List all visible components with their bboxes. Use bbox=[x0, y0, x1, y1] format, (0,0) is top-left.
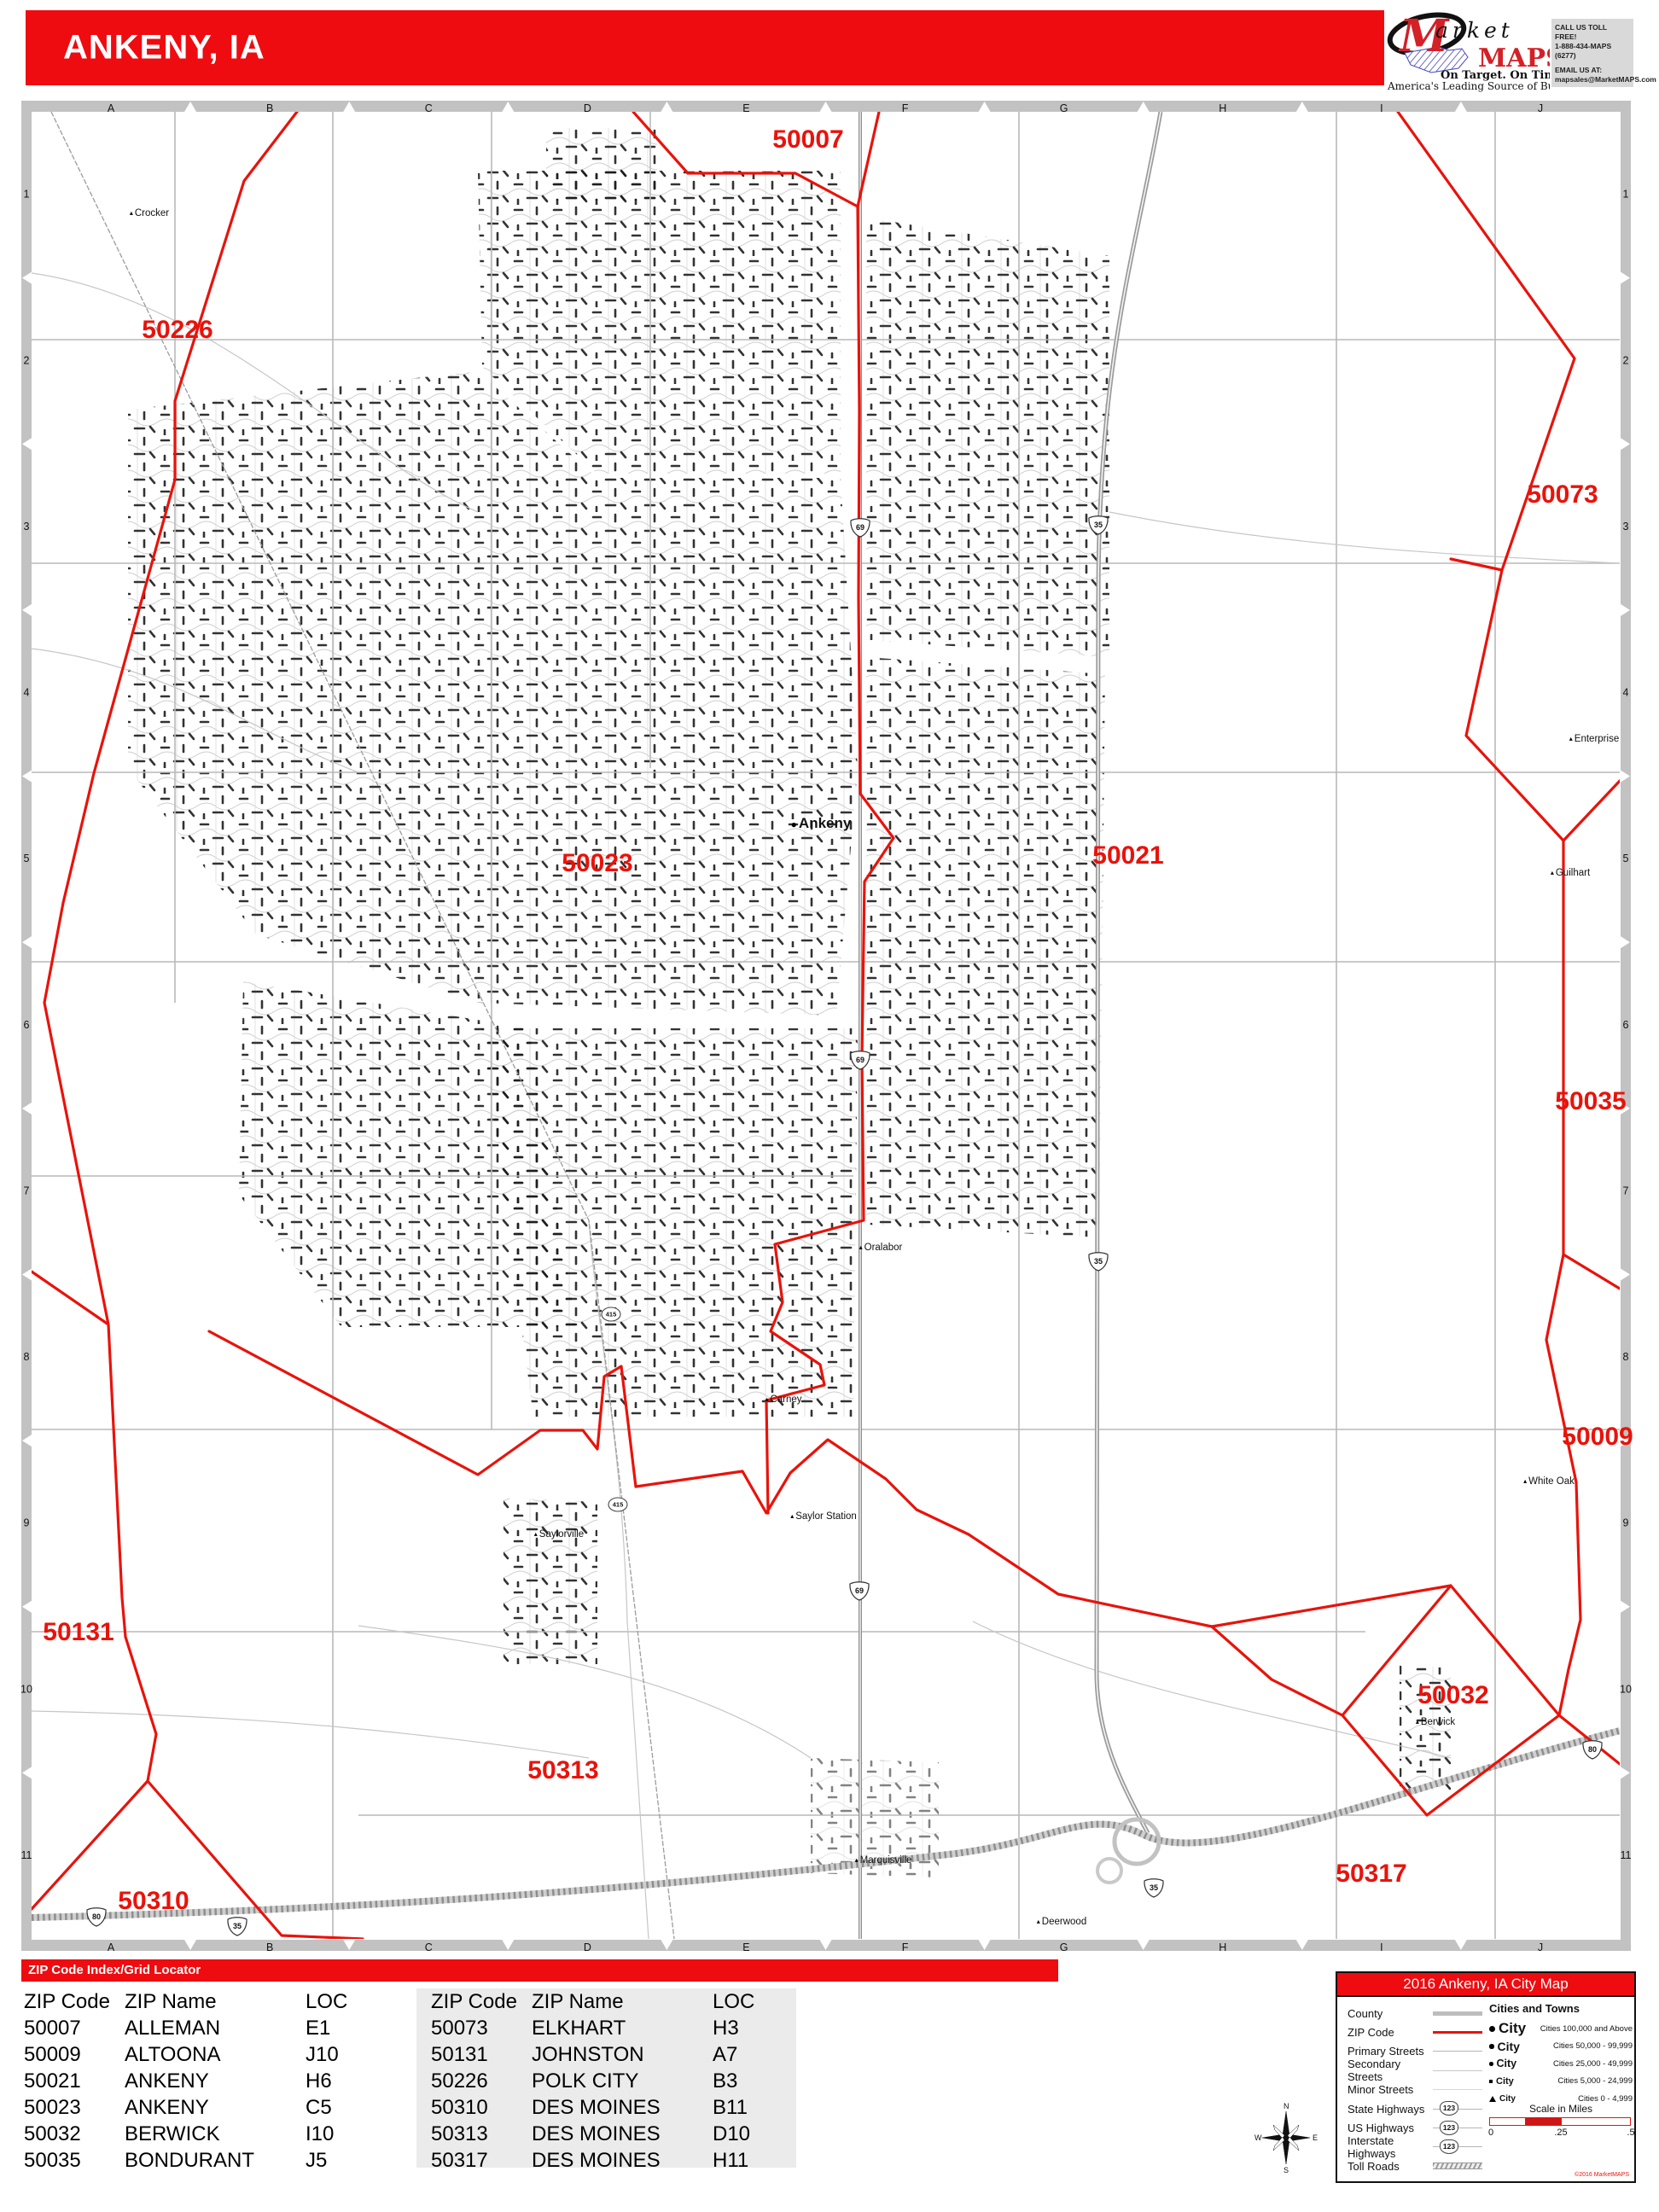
index-cell: ELKHART bbox=[532, 2017, 713, 2040]
legend-line bbox=[1433, 2070, 1482, 2071]
grid-col-top-B: B bbox=[266, 102, 273, 114]
legend-line-sample bbox=[1433, 2046, 1482, 2058]
legend-line bbox=[1433, 2163, 1482, 2169]
city-label-berwick: ▴Berwick bbox=[1416, 1717, 1455, 1727]
grid-row-right-2: 2 bbox=[1623, 354, 1629, 366]
city-label-oralabor: ▴Oralabor bbox=[859, 1243, 903, 1253]
grid-col-bottom-A: A bbox=[108, 1941, 115, 1953]
index-cell: ALLEMAN bbox=[125, 2017, 306, 2040]
zip-label-50310: 50310 bbox=[118, 1887, 189, 1916]
city-class-marker-icon bbox=[1489, 2080, 1493, 2083]
legend-line-sample bbox=[1433, 2027, 1482, 2039]
zip-label-50073: 50073 bbox=[1527, 480, 1598, 509]
index-header-cell: LOC bbox=[306, 1990, 382, 2014]
index-cell: 50073 bbox=[431, 2017, 532, 2040]
zip-boundary-10 bbox=[1563, 781, 1620, 841]
index-header-cell: ZIP Code bbox=[24, 1990, 125, 2014]
legend-line-sample: 123 bbox=[1433, 2103, 1482, 2115]
city-class-label: City bbox=[1499, 2020, 1526, 2037]
table-row: 50009ALTOONAJ10 bbox=[24, 2041, 399, 2068]
page: { "colors":{"accent_red":"#ee0c10","boun… bbox=[0, 0, 1659, 2212]
legend-item-zip-code: ZIP Code bbox=[1348, 2023, 1484, 2041]
city-class-desc: Cities 100,000 and Above bbox=[1540, 2024, 1633, 2034]
index-cell: 50007 bbox=[24, 2017, 125, 2040]
index-title: ZIP Code Index/Grid Locator bbox=[28, 1963, 201, 1977]
table-row: 50023ANKENYC5 bbox=[24, 2094, 399, 2121]
index-cell: B3 bbox=[713, 2069, 789, 2093]
legend-item-label: Secondary Streets bbox=[1348, 2058, 1433, 2083]
city-marker-icon: ▴ bbox=[765, 1395, 768, 1403]
grid-col-top-G: G bbox=[1060, 102, 1068, 114]
city-marker-icon: ▴ bbox=[790, 1512, 794, 1520]
grid-row-right-4: 4 bbox=[1623, 687, 1629, 699]
grid-row-left-3: 3 bbox=[24, 521, 30, 533]
legend-city-class-3: CityCities 5,000 - 24,999 bbox=[1489, 2073, 1633, 2091]
svg-text:69: 69 bbox=[855, 1586, 864, 1595]
us-shield-69: 69 bbox=[850, 1582, 869, 1600]
logo-arket: arket bbox=[1435, 18, 1514, 43]
index-cell: J5 bbox=[306, 2149, 382, 2173]
city-label-enterprise: ▴Enterprise bbox=[1569, 734, 1619, 744]
city-class-label: City bbox=[1496, 2076, 1514, 2087]
svg-text:80: 80 bbox=[92, 1912, 101, 1921]
city-marker-icon: ▴ bbox=[1551, 869, 1554, 876]
scale-tick-1: .25 bbox=[1554, 2128, 1567, 2138]
legend-item-minor-streets: Minor Streets bbox=[1348, 2081, 1484, 2099]
table-row: 50021ANKENYH6 bbox=[24, 2068, 399, 2094]
grid-col-bottom-G: G bbox=[1060, 1941, 1068, 1953]
grid-row-left-8: 8 bbox=[24, 1351, 30, 1363]
index-header-row: ZIP CodeZIP NameLOC bbox=[431, 1988, 798, 2015]
index-cell: BONDURANT bbox=[125, 2149, 306, 2173]
index-cell: ANKENY bbox=[125, 2069, 306, 2093]
legend-line-sample bbox=[1433, 2084, 1482, 2096]
index-cell: 50226 bbox=[431, 2069, 532, 2093]
index-cell: H11 bbox=[713, 2149, 789, 2173]
legend-item-secondary-streets: Secondary Streets bbox=[1348, 2061, 1484, 2080]
city-label-ankeny: ●Ankeny bbox=[791, 815, 852, 832]
legend-line bbox=[1433, 2051, 1482, 2052]
legend-item-state-highways: State Highways123 bbox=[1348, 2099, 1484, 2118]
grid-col-top-F: F bbox=[902, 102, 909, 114]
interstate-shield-35: 35 bbox=[228, 1918, 247, 1935]
table-row: 50032BERWICKI10 bbox=[24, 2121, 399, 2147]
grid-row-right-6: 6 bbox=[1623, 1019, 1629, 1031]
compass-n: N bbox=[1284, 2102, 1289, 2110]
index-cell: 50009 bbox=[24, 2043, 125, 2067]
grid-row-left-11: 11 bbox=[21, 1849, 32, 1861]
grid-row-right-10: 10 bbox=[1620, 1683, 1632, 1695]
legend-box: 2016 Ankeny, IA City Map CountyZIP CodeP… bbox=[1336, 1971, 1636, 2183]
index-cell: B11 bbox=[713, 2096, 789, 2120]
legend-city-class-2: CityCities 25,000 - 49,999 bbox=[1489, 2055, 1633, 2073]
index-cell: JOHNSTON bbox=[532, 2043, 713, 2067]
zip-label-50021: 50021 bbox=[1092, 841, 1163, 870]
table-row: 50310DES MOINESB11 bbox=[431, 2094, 798, 2121]
grid-col-top-C: C bbox=[425, 102, 433, 114]
legend-item-label: Primary Streets bbox=[1348, 2045, 1433, 2058]
index-cell: J10 bbox=[306, 2043, 382, 2067]
legend-line bbox=[1433, 2031, 1482, 2034]
index-cell: D10 bbox=[713, 2122, 789, 2146]
index-cell: 50313 bbox=[431, 2122, 532, 2146]
legend-line-sample: 123 bbox=[1433, 2122, 1482, 2134]
legend-line bbox=[1433, 2089, 1482, 2090]
index-cell: DES MOINES bbox=[532, 2096, 713, 2120]
city-marker-icon: ▴ bbox=[534, 1530, 538, 1538]
legend-title: 2016 Ankeny, IA City Map bbox=[1337, 1973, 1634, 1997]
interstate-shield-80: 80 bbox=[87, 1908, 106, 1926]
index-title-bar: ZIP Code Index/Grid Locator bbox=[21, 1959, 1058, 1982]
svg-text:35: 35 bbox=[1094, 521, 1103, 529]
grid-row-right-8: 8 bbox=[1623, 1351, 1629, 1363]
scale-bar bbox=[1489, 2117, 1631, 2126]
city-label-saylorville: ▴Saylorville bbox=[534, 1529, 584, 1540]
grid-row-left-5: 5 bbox=[24, 853, 30, 864]
compass-w: W bbox=[1254, 2133, 1262, 2142]
svg-text:35: 35 bbox=[1094, 1257, 1103, 1266]
marketmaps-logo: M arket MAPS On Target. On Time. America… bbox=[1386, 3, 1550, 92]
legend-cities-title: Cities and Towns bbox=[1489, 2002, 1633, 2015]
city-class-label: City bbox=[1498, 2040, 1520, 2053]
legend-item-label: State Highways bbox=[1348, 2103, 1433, 2116]
table-row: 50226POLK CITYB3 bbox=[431, 2068, 798, 2094]
grid-row-left-9: 9 bbox=[24, 1517, 30, 1529]
grid-col-bottom-B: B bbox=[266, 1941, 273, 1953]
scale-tick-0: 0 bbox=[1488, 2128, 1493, 2138]
grid-col-bottom-I: I bbox=[1380, 1941, 1382, 1953]
grid-col-bottom-E: E bbox=[742, 1941, 749, 1953]
interstate-shield-80: 80 bbox=[1583, 1741, 1602, 1759]
city-label-saylor-station: ▴Saylor Station bbox=[790, 1511, 857, 1522]
legend-line-sample: 123 bbox=[1433, 2141, 1482, 2153]
zip-label-50131: 50131 bbox=[43, 1618, 114, 1647]
legend-line bbox=[1433, 2011, 1482, 2016]
title-banner: ANKENY, IA bbox=[26, 10, 1384, 85]
scale-ticks: 0.25.5 bbox=[1489, 2128, 1633, 2139]
city-label-marquisville: ▴Marquisville bbox=[855, 1855, 912, 1866]
grid-col-bottom-H: H bbox=[1219, 1941, 1226, 1953]
legend-road-items: CountyZIP CodePrimary StreetsSecondary S… bbox=[1348, 2004, 1484, 2176]
index-cell: C5 bbox=[306, 2096, 382, 2120]
index-cell: 50035 bbox=[24, 2149, 125, 2173]
zip-boundary-1 bbox=[32, 1272, 156, 1909]
grid-col-top-H: H bbox=[1219, 102, 1226, 114]
legend-city-class-0: CityCities 100,000 and Above bbox=[1489, 2020, 1633, 2038]
legend-item-label: US Highways bbox=[1348, 2122, 1433, 2134]
legend-shield-icon: 123 bbox=[1440, 2121, 1458, 2135]
grid-row-right-7: 7 bbox=[1623, 1185, 1629, 1196]
city-label-carney: ▴Carney bbox=[765, 1394, 801, 1405]
zip-boundary-11 bbox=[1563, 1254, 1620, 1289]
grid-row-left-4: 4 bbox=[24, 687, 30, 699]
grid-col-bottom-F: F bbox=[902, 1941, 909, 1953]
index-cell: E1 bbox=[306, 2017, 382, 2040]
contact-call-label: CALL US TOLL FREE! bbox=[1555, 23, 1630, 42]
svg-text:69: 69 bbox=[856, 1056, 864, 1064]
index-cell: I10 bbox=[306, 2122, 382, 2146]
index-cell: 50032 bbox=[24, 2122, 125, 2146]
index-cell: 50023 bbox=[24, 2096, 125, 2120]
index-cell: 50131 bbox=[431, 2043, 532, 2067]
city-label-deerwood: ▴Deerwood bbox=[1037, 1917, 1086, 1927]
zip-boundary-7 bbox=[1212, 1627, 1342, 1715]
zip-label-50007: 50007 bbox=[772, 125, 843, 154]
legend-item-toll-roads: Toll Roads bbox=[1348, 2157, 1484, 2175]
city-class-marker-icon bbox=[1489, 2096, 1496, 2102]
grid-row-left-1: 1 bbox=[24, 189, 30, 201]
grid-row-right-5: 5 bbox=[1623, 853, 1629, 864]
legend-item-county: County bbox=[1348, 2004, 1484, 2023]
grid-row-right-1: 1 bbox=[1623, 189, 1629, 201]
index-header-row: ZIP CodeZIP NameLOC bbox=[24, 1988, 399, 2015]
zip-label-50317: 50317 bbox=[1336, 1860, 1406, 1889]
index-cell: DES MOINES bbox=[532, 2149, 713, 2173]
legend-scale: Scale in Miles 0.25.5 bbox=[1489, 2103, 1633, 2139]
logo-subtagline: America's Leading Source of Business Map… bbox=[1387, 80, 1550, 92]
index-cell: ANKENY bbox=[125, 2096, 306, 2120]
legend-line-sample bbox=[1433, 2064, 1482, 2076]
grid-col-bottom-D: D bbox=[584, 1941, 591, 1953]
index-cell: ALTOONA bbox=[125, 2043, 306, 2067]
page-title: ANKENY, IA bbox=[63, 29, 265, 67]
index-cell: 50021 bbox=[24, 2069, 125, 2093]
interstate-shield-35: 35 bbox=[1089, 1253, 1108, 1271]
city-class-desc: Cities 50,000 - 99,999 bbox=[1553, 2041, 1633, 2051]
index-table-left: ZIP CodeZIP NameLOC50007ALLEMANE150009AL… bbox=[24, 1988, 399, 2174]
grid-row-right-3: 3 bbox=[1623, 521, 1629, 533]
compass-e: E bbox=[1313, 2133, 1318, 2142]
city-marker-icon: ▴ bbox=[130, 209, 133, 217]
city-class-marker-icon bbox=[1489, 2062, 1493, 2066]
contact-box: CALL US TOLL FREE! 1-888-434-MAPS (6277)… bbox=[1551, 19, 1633, 87]
svg-text:35: 35 bbox=[233, 1922, 242, 1930]
legend-line-sample bbox=[1433, 2160, 1482, 2172]
index-header-cell: LOC bbox=[713, 1990, 789, 2014]
grid-col-bottom-C: C bbox=[425, 1941, 433, 1953]
legend-shield-icon: 123 bbox=[1440, 2101, 1458, 2116]
grid-col-top-A: A bbox=[108, 102, 115, 114]
index-cell: A7 bbox=[713, 2043, 789, 2067]
index-cell: 50310 bbox=[431, 2096, 532, 2120]
table-row: 50073ELKHARTH3 bbox=[431, 2015, 798, 2041]
legend-city-classes: CityCities 100,000 and AboveCityCities 5… bbox=[1489, 2020, 1633, 2108]
zip-label-50226: 50226 bbox=[142, 316, 212, 345]
city-marker-icon: ▴ bbox=[1569, 735, 1573, 742]
index-header-cell: ZIP Code bbox=[431, 1990, 532, 2014]
legend-line-sample bbox=[1433, 2007, 1482, 2019]
index-cell: DES MOINES bbox=[532, 2122, 713, 2146]
zip-label-50023: 50023 bbox=[562, 849, 632, 878]
city-marker-icon: ● bbox=[791, 818, 797, 830]
svg-text:415: 415 bbox=[606, 1310, 617, 1318]
grid-row-left-7: 7 bbox=[24, 1185, 30, 1196]
index-cell: BERWICK bbox=[125, 2122, 306, 2146]
legend-item-label: County bbox=[1348, 2007, 1433, 2020]
zip-label-50035: 50035 bbox=[1555, 1087, 1626, 1116]
zip-label-50009: 50009 bbox=[1562, 1423, 1633, 1452]
grid-row-left-6: 6 bbox=[24, 1019, 30, 1031]
scale-tick-2: .5 bbox=[1627, 2128, 1634, 2138]
compass-s: S bbox=[1284, 2166, 1289, 2174]
index-cell: 50317 bbox=[431, 2149, 532, 2173]
svg-text:415: 415 bbox=[613, 1500, 624, 1508]
legend-item-label: Toll Roads bbox=[1348, 2160, 1433, 2173]
city-marker-icon: ▴ bbox=[1037, 1918, 1040, 1925]
grid-col-top-E: E bbox=[742, 102, 749, 114]
interstate-shield-35: 35 bbox=[1144, 1879, 1163, 1897]
grid-col-bottom-J: J bbox=[1538, 1941, 1543, 1953]
legend-item-interstate-highways: Interstate Highways123 bbox=[1348, 2138, 1484, 2157]
table-row: 50313DES MOINESD10 bbox=[431, 2121, 798, 2147]
index-header-cell: ZIP Name bbox=[532, 1990, 713, 2014]
index-table-right: ZIP CodeZIP NameLOC50073ELKHARTH350131JO… bbox=[431, 1988, 798, 2174]
city-class-label: City bbox=[1497, 2058, 1517, 2069]
urban-street-texture bbox=[128, 128, 1451, 1877]
legend-item-label: Interstate Highways bbox=[1348, 2134, 1433, 2160]
legend-copyright: ©2016 MarketMAPS bbox=[1575, 2172, 1629, 2178]
zip-boundary-9 bbox=[1466, 570, 1580, 1715]
grid-row-left-10: 10 bbox=[20, 1683, 32, 1695]
table-row: 50007ALLEMANE1 bbox=[24, 2015, 399, 2041]
grid-col-top-I: I bbox=[1380, 102, 1382, 114]
grid-row-right-9: 9 bbox=[1623, 1517, 1629, 1529]
city-class-desc: Cities 25,000 - 49,999 bbox=[1553, 2059, 1633, 2069]
city-class-desc: Cities 5,000 - 24,999 bbox=[1557, 2076, 1633, 2086]
city-marker-icon: ▴ bbox=[859, 1243, 863, 1251]
grid-col-top-D: D bbox=[584, 102, 591, 114]
legend-shield-icon: 123 bbox=[1440, 2139, 1458, 2154]
city-marker-icon: ▴ bbox=[1416, 1718, 1419, 1726]
contact-phone[interactable]: 1-888-434-MAPS (6277) bbox=[1555, 42, 1630, 61]
table-row: 50317DES MOINESH11 bbox=[431, 2147, 798, 2174]
state-shield-415: 415 bbox=[602, 1307, 620, 1321]
zip-label-50313: 50313 bbox=[527, 1756, 598, 1785]
city-label-white-oak: ▴White Oak bbox=[1523, 1476, 1575, 1487]
table-row: 50131JOHNSTONA7 bbox=[431, 2041, 798, 2068]
contact-email[interactable]: mapsales@MarketMAPS.com bbox=[1555, 75, 1630, 84]
svg-text:69: 69 bbox=[856, 523, 864, 532]
city-class-marker-icon bbox=[1489, 2026, 1495, 2032]
legend-city-class-1: CityCities 50,000 - 99,999 bbox=[1489, 2038, 1633, 2056]
city-marker-icon: ▴ bbox=[855, 1856, 859, 1864]
state-shield-415: 415 bbox=[608, 1498, 627, 1511]
index-cell: H3 bbox=[713, 2017, 789, 2040]
grid-row-right-11: 11 bbox=[1621, 1849, 1632, 1861]
legend-item-label: Minor Streets bbox=[1348, 2083, 1433, 2096]
city-class-marker-icon bbox=[1489, 2044, 1494, 2049]
city-marker-icon: ▴ bbox=[1523, 1477, 1527, 1485]
scale-title: Scale in Miles bbox=[1489, 2103, 1633, 2115]
compass-rose: N S W E bbox=[1254, 2101, 1318, 2174]
grid-col-top-J: J bbox=[1538, 102, 1543, 114]
grid-row-left-2: 2 bbox=[24, 354, 30, 366]
svg-text:80: 80 bbox=[1588, 1745, 1597, 1754]
index-header-cell: ZIP Name bbox=[125, 1990, 306, 2014]
city-label-guilhart: ▴Guilhart bbox=[1551, 868, 1590, 878]
map-canvas: 696969353580358035415415 AABBCCDDEEFFGGH… bbox=[0, 0, 1659, 2212]
table-row: 50035BONDURANTJ5 bbox=[24, 2147, 399, 2174]
contact-email-label: EMAIL US AT: bbox=[1555, 66, 1630, 75]
index-cell: POLK CITY bbox=[532, 2069, 713, 2093]
index-cell: H6 bbox=[306, 2069, 382, 2093]
city-label-crocker: ▴Crocker bbox=[130, 208, 169, 218]
legend-item-label: ZIP Code bbox=[1348, 2026, 1433, 2039]
zip-label-50032: 50032 bbox=[1417, 1681, 1488, 1710]
svg-text:35: 35 bbox=[1150, 1883, 1158, 1892]
zip-boundary-6 bbox=[1212, 1586, 1559, 1815]
